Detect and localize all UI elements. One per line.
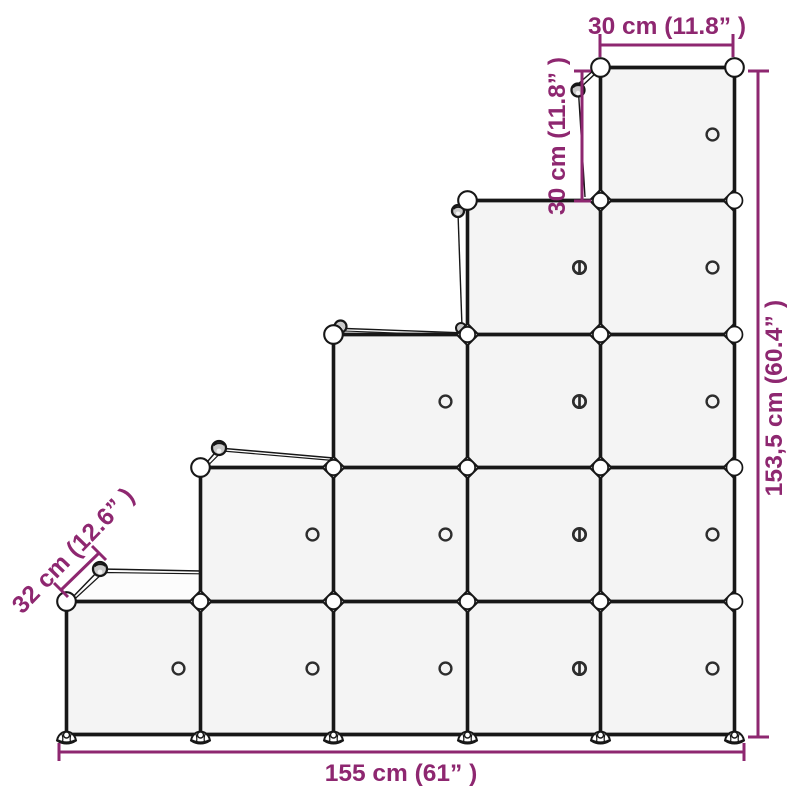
svg-text:30 cm (11.8” ): 30 cm (11.8” )	[588, 13, 746, 40]
svg-text:153,5 cm (60.4” ): 153,5 cm (60.4” )	[761, 300, 788, 497]
svg-text:155 cm (61” ): 155 cm (61” )	[325, 760, 478, 787]
svg-text:30 cm (11.8” ): 30 cm (11.8” )	[544, 57, 571, 215]
